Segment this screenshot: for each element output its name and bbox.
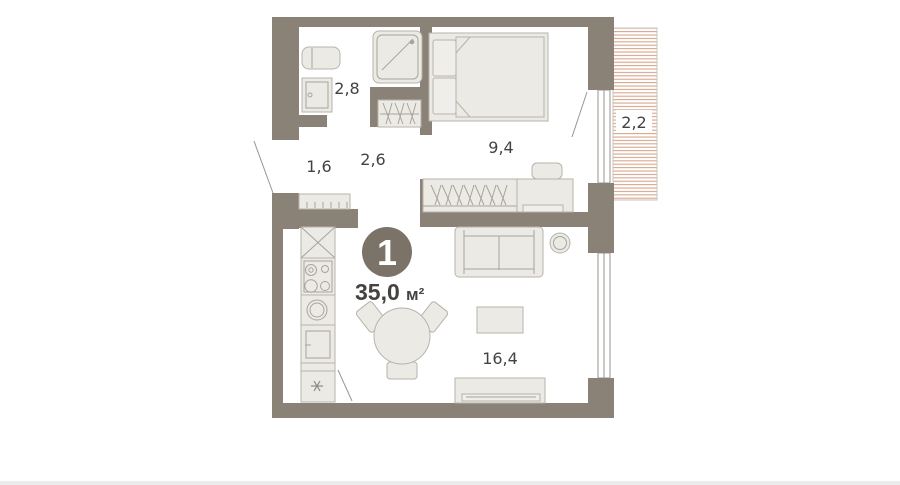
floor-plan-page: 2,8 1,6 2,6 9,4 2,2 16,4 1 35,0 м² <box>0 0 900 485</box>
dining-set <box>355 301 449 379</box>
tv-stand <box>455 378 545 403</box>
total-area-unit: м² <box>406 285 425 304</box>
wall-left-lower <box>272 193 283 418</box>
room-label-hallway: 1,6 <box>306 157 331 176</box>
bathroom-fixtures <box>302 31 422 127</box>
wall-shower-separator <box>370 87 433 100</box>
coffee-table <box>477 307 523 333</box>
pillow <box>433 78 456 114</box>
bed <box>429 33 548 121</box>
fridge <box>301 371 335 402</box>
wall-washer-stub <box>370 87 378 127</box>
oven <box>301 325 335 363</box>
stove <box>301 258 335 295</box>
wall-top-right-block <box>588 17 614 90</box>
entrance-door-swing <box>254 141 273 193</box>
toilet <box>302 47 340 69</box>
kitchen-tall-cabinet <box>301 227 335 258</box>
wall-window-pier <box>588 183 614 253</box>
kitchen-sink <box>301 295 335 325</box>
room-label-bathroom: 2,8 <box>334 79 359 98</box>
bathroom-sink <box>302 78 332 112</box>
counter-segment <box>301 363 335 371</box>
wall-kitchen-top <box>299 209 358 228</box>
balcony-door-swing <box>572 92 587 137</box>
wall-room-divider <box>420 212 614 227</box>
wall-bathroom-bottom <box>272 115 327 127</box>
total-area-value: 35,0 <box>355 279 400 305</box>
room-label-corridor: 2,6 <box>360 150 385 169</box>
pillow <box>433 40 456 76</box>
living-furniture <box>455 227 570 403</box>
kitchen-units <box>301 227 335 402</box>
wardrobe <box>423 179 517 212</box>
rooms-count: 1 <box>377 232 397 273</box>
bedroom-furniture <box>423 33 573 212</box>
wall-hall-block <box>283 193 299 229</box>
hall-closet <box>299 194 350 209</box>
wall-top <box>272 17 593 27</box>
shower-cabin <box>373 31 422 83</box>
room-label-living-kitchen: 16,4 <box>482 349 518 368</box>
side-table <box>550 233 570 253</box>
room-label-balcony: 2,2 <box>621 113 646 132</box>
floor-plan: 2,8 1,6 2,6 9,4 2,2 16,4 1 35,0 м² <box>0 0 900 485</box>
desk-chair <box>532 163 562 179</box>
sofa <box>455 227 543 277</box>
desk <box>517 163 573 212</box>
wall-bottom <box>272 403 614 418</box>
washing-machine <box>378 100 421 127</box>
shower-head <box>410 40 415 45</box>
apartment-summary: 1 35,0 м² <box>355 227 425 305</box>
dining-chair <box>387 362 417 379</box>
room-label-bedroom: 9,4 <box>488 138 513 157</box>
dining-table <box>374 308 430 364</box>
cabinet-door-swing <box>338 370 352 401</box>
bottom-bar <box>0 481 900 485</box>
